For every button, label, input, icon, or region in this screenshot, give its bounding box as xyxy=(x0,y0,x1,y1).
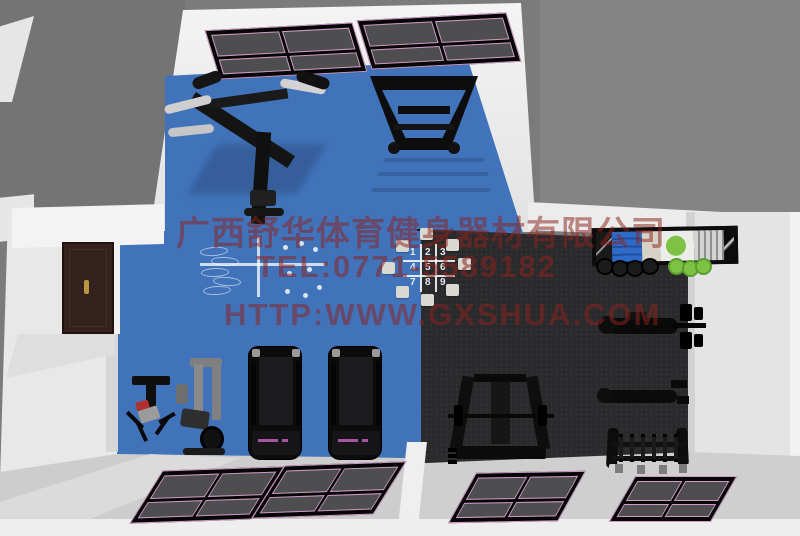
window-pane xyxy=(617,504,669,517)
dumbbell-handle xyxy=(652,434,656,462)
machine-foot xyxy=(448,142,460,154)
machine-shadow-line xyxy=(383,158,485,162)
window-pane xyxy=(260,496,324,514)
window-pane xyxy=(138,501,202,519)
window-pane xyxy=(195,499,259,517)
treadmill-rail xyxy=(376,361,381,425)
window-pane xyxy=(664,504,716,517)
background-right-shade xyxy=(540,0,800,212)
window-pane xyxy=(281,28,355,53)
entrance-door xyxy=(62,242,114,334)
machine-base xyxy=(183,448,225,455)
window-pane xyxy=(434,18,509,43)
treadmill-cap xyxy=(252,349,260,357)
window-pane xyxy=(626,481,682,501)
machine-arm xyxy=(168,124,215,138)
bench-leg xyxy=(158,412,176,424)
flat-bench xyxy=(597,380,693,408)
rack-upright xyxy=(606,428,619,469)
rack-step xyxy=(448,448,457,452)
machine-seat xyxy=(250,190,276,206)
kettlebell xyxy=(641,258,659,275)
machine-shadow-line xyxy=(377,172,489,176)
treadmill-cap xyxy=(332,349,340,357)
dumbbell-rack xyxy=(605,428,693,474)
floor-dot xyxy=(285,289,290,294)
window-pane xyxy=(363,21,438,46)
rack-plate xyxy=(538,405,547,426)
window-pane xyxy=(507,501,564,517)
machine-top-bar xyxy=(208,88,289,109)
bench-head xyxy=(597,388,612,403)
treadmill-deck xyxy=(339,357,373,425)
rack-top-bar xyxy=(474,374,526,382)
machine-crossbar xyxy=(398,106,450,114)
hack-squat-machine xyxy=(370,76,478,150)
bench-plate xyxy=(680,304,692,321)
watermark-phone: TEL:0771-5589182 xyxy=(256,249,557,285)
dumbbell-handle xyxy=(630,434,634,462)
treadmill-cap xyxy=(292,349,300,357)
floor-dot xyxy=(317,285,322,290)
bench-stub xyxy=(677,396,689,404)
rack-plate xyxy=(454,405,463,426)
treadmill-console xyxy=(332,431,380,455)
floor-scribble xyxy=(203,285,231,295)
treadmill-right xyxy=(328,346,382,460)
dumbbell xyxy=(609,464,629,473)
bench-bar xyxy=(672,323,706,328)
window-pane xyxy=(517,476,578,499)
window-pane xyxy=(371,46,444,64)
shelf-endcap xyxy=(724,230,735,260)
treadmill-cap xyxy=(372,349,380,357)
window-top-1 xyxy=(205,22,368,79)
rack-step xyxy=(448,454,457,458)
window-pane xyxy=(317,494,381,512)
dumbbell xyxy=(653,465,673,474)
rack-step xyxy=(448,460,457,464)
machine-column xyxy=(212,364,221,420)
window-top-2 xyxy=(357,12,522,69)
window-pane xyxy=(289,53,361,71)
treadmill-rail xyxy=(296,361,301,425)
dumbbell xyxy=(673,464,693,473)
exercise-ball xyxy=(695,258,712,275)
dumbbell-handle xyxy=(619,434,623,462)
window-pane xyxy=(219,56,291,74)
bench-plate xyxy=(680,332,692,349)
machine-pad xyxy=(176,384,188,404)
dumbbell-handle xyxy=(663,434,667,462)
rack-base xyxy=(456,446,546,459)
dumbbell-handle xyxy=(674,434,678,462)
bench-plate xyxy=(694,334,703,347)
bench-plate xyxy=(694,307,703,320)
machine-shadow-line xyxy=(371,188,491,192)
treadmill-rail xyxy=(331,361,336,425)
dumbbell xyxy=(631,465,651,474)
squat-rack xyxy=(448,374,554,466)
machine-foot xyxy=(388,142,400,154)
window-pane xyxy=(673,481,729,501)
bench-body xyxy=(601,390,677,403)
treadmill-console-accent xyxy=(258,439,278,442)
bench-stub xyxy=(671,380,687,388)
treadmill-rail xyxy=(251,361,256,425)
cable-multigym xyxy=(176,356,234,456)
dumbbell-handle xyxy=(641,434,645,462)
treadmill-console-accent xyxy=(362,439,368,442)
weight-bench-red xyxy=(124,376,174,444)
window-pane xyxy=(442,42,515,60)
watermark-website: HTTP:WWW.GXSHUA.COM xyxy=(224,297,662,333)
multi-station-gym xyxy=(168,74,316,214)
door-handle xyxy=(84,280,89,294)
treadmill-console-accent xyxy=(282,439,288,442)
window-pane xyxy=(211,31,285,56)
rack-column xyxy=(491,382,510,444)
treadmill-left xyxy=(248,346,302,460)
machine-crossbar xyxy=(394,124,454,130)
watermark-company-name: 广西舒华体育健身器材有限公司 xyxy=(176,206,666,255)
gym-floorplan-render: 1 2 3 4 5 6 7 8 9 xyxy=(0,0,800,536)
treadmill-console xyxy=(252,431,300,455)
exercise-ball-green xyxy=(666,236,686,256)
shelf-rollers xyxy=(694,230,725,261)
treadmill-console-accent xyxy=(338,439,358,442)
treadmill-deck xyxy=(259,357,293,425)
door-frame xyxy=(114,242,120,334)
window-pane xyxy=(456,502,513,518)
